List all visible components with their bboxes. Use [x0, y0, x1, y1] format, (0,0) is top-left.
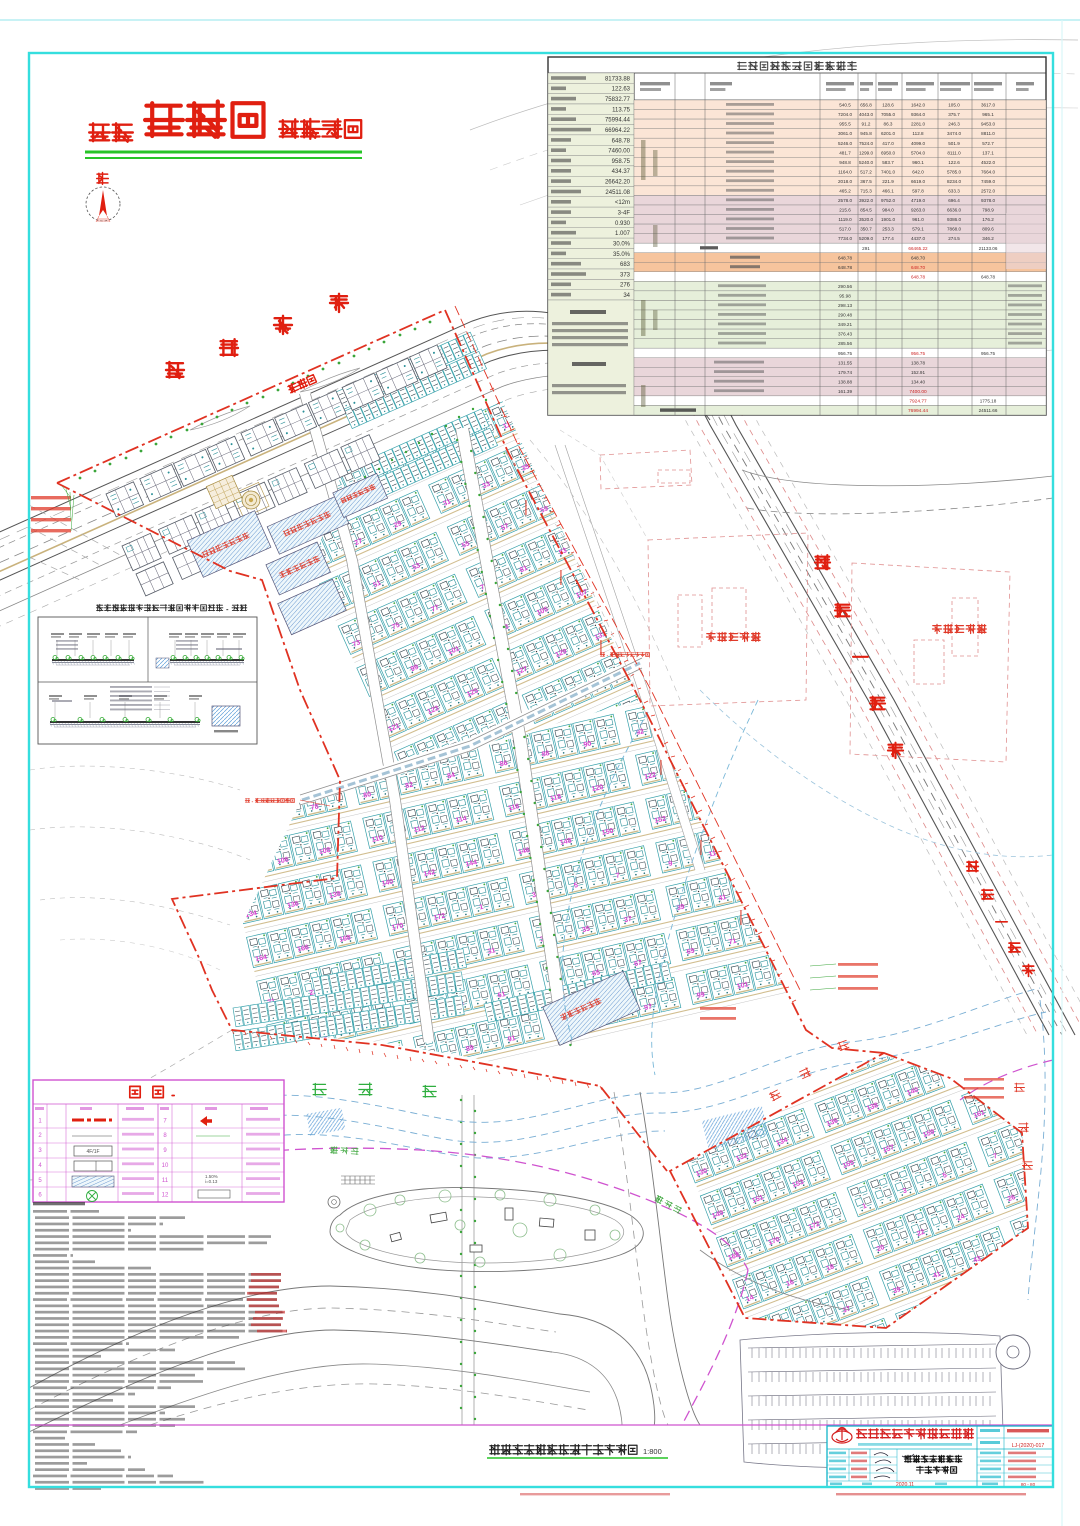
svg-text:648.78: 648.78 — [838, 265, 852, 270]
svg-text:7055.0: 7055.0 — [881, 112, 895, 117]
svg-text:965.1: 965.1 — [982, 112, 994, 117]
svg-text:9752.0: 9752.0 — [881, 198, 895, 203]
svg-text:24511.08: 24511.08 — [605, 190, 630, 196]
svg-text:i=0.13: i=0.13 — [205, 1179, 218, 1184]
svg-text:501.9: 501.9 — [948, 141, 960, 146]
svg-text:5209.0: 5209.0 — [859, 236, 873, 241]
svg-text:958.75: 958.75 — [612, 159, 631, 165]
svg-text:350.7: 350.7 — [860, 227, 872, 232]
svg-text:10: 10 — [162, 1163, 169, 1169]
svg-text:113.75: 113.75 — [612, 107, 631, 113]
svg-text:4522.0: 4522.0 — [981, 160, 995, 165]
svg-text:274.5: 274.5 — [948, 236, 960, 241]
svg-text:572.7: 572.7 — [982, 141, 994, 146]
svg-text:221.9: 221.9 — [882, 179, 894, 184]
svg-text:8234.0: 8234.0 — [947, 179, 961, 184]
svg-text:648.78: 648.78 — [612, 138, 631, 144]
svg-text:253.3: 253.3 — [882, 227, 894, 232]
svg-text:648.78: 648.78 — [981, 274, 995, 279]
svg-text:2018.0: 2018.0 — [838, 179, 852, 184]
svg-text:7734.0: 7734.0 — [838, 236, 852, 241]
svg-text:3-4F: 3-4F — [618, 211, 631, 217]
svg-text:81733.88: 81733.88 — [605, 76, 631, 82]
svg-text:7460.00: 7460.00 — [608, 149, 630, 155]
svg-text:95.98: 95.98 — [839, 294, 851, 299]
svg-text:517.2: 517.2 — [860, 169, 872, 174]
svg-text:176.2: 176.2 — [982, 217, 994, 222]
svg-text:696.4: 696.4 — [948, 198, 960, 203]
svg-text:7924.77: 7924.77 — [909, 399, 927, 405]
svg-text:3061.0: 3061.0 — [838, 131, 852, 136]
svg-text:9263.0: 9263.0 — [911, 208, 925, 213]
svg-text:583.7: 583.7 — [882, 160, 894, 165]
svg-text:138.78: 138.78 — [911, 360, 925, 365]
svg-text:648.78: 648.78 — [838, 255, 852, 260]
svg-text:12: 12 — [162, 1193, 169, 1199]
svg-text:809.6: 809.6 — [982, 227, 994, 232]
svg-text:956.75: 956.75 — [981, 351, 995, 356]
svg-text:854.5: 854.5 — [860, 208, 872, 213]
svg-text:956.75: 956.75 — [838, 351, 852, 356]
svg-text:8111.0: 8111.0 — [947, 150, 961, 155]
svg-text:11: 11 — [162, 1178, 169, 1184]
svg-text:66465.22: 66465.22 — [908, 246, 928, 251]
svg-text:6201.0: 6201.0 — [881, 131, 895, 136]
svg-text:4719.0: 4719.0 — [911, 198, 925, 203]
svg-text:715.3: 715.3 — [860, 189, 872, 194]
svg-text:137.1: 137.1 — [982, 150, 994, 155]
svg-text:4437.0: 4437.0 — [911, 236, 925, 241]
svg-text:122.63: 122.63 — [612, 87, 631, 93]
svg-text:7868.0: 7868.0 — [947, 227, 961, 232]
svg-text:5704.0: 5704.0 — [911, 150, 925, 155]
svg-text:34: 34 — [623, 293, 630, 299]
svg-text:375.7: 375.7 — [948, 112, 960, 117]
svg-text:376.43: 376.43 — [838, 332, 852, 337]
svg-text:517.0: 517.0 — [839, 227, 851, 232]
svg-text:21133.06: 21133.06 — [979, 246, 998, 251]
svg-text:6619.0: 6619.0 — [911, 179, 925, 184]
svg-text:1901.0: 1901.0 — [881, 217, 895, 222]
svg-text:0.930: 0.930 — [615, 221, 631, 227]
svg-text:656.8: 656.8 — [860, 103, 872, 108]
svg-text:648.70: 648.70 — [911, 265, 925, 270]
svg-text:7459.0: 7459.0 — [981, 179, 995, 184]
svg-text:956.75: 956.75 — [911, 351, 925, 356]
svg-text:465.2: 465.2 — [839, 189, 851, 194]
svg-text:290.48: 290.48 — [838, 313, 852, 318]
svg-text:112.8: 112.8 — [912, 131, 924, 136]
svg-text:75832.77: 75832.77 — [605, 97, 631, 103]
svg-text:597.8: 597.8 — [912, 189, 924, 194]
svg-text:35.0%: 35.0% — [613, 252, 631, 258]
svg-text:76994.44: 76994.44 — [908, 408, 928, 414]
svg-text:9378.0: 9378.0 — [981, 198, 995, 203]
svg-text:1299.0: 1299.0 — [859, 150, 873, 155]
svg-text:648.78: 648.78 — [911, 274, 925, 279]
svg-text:1164.0: 1164.0 — [838, 169, 852, 174]
svg-text:960.1: 960.1 — [912, 160, 924, 165]
svg-text:66964.22: 66964.22 — [605, 128, 631, 134]
svg-text:86.3: 86.3 — [884, 122, 893, 127]
svg-text:346.2: 346.2 — [982, 236, 994, 241]
svg-text:138.88: 138.88 — [838, 379, 852, 384]
svg-text:648.70: 648.70 — [911, 255, 925, 260]
svg-text:91.2: 91.2 — [862, 122, 871, 127]
svg-text:1775.18: 1775.18 — [980, 399, 997, 404]
svg-text:122.6: 122.6 — [948, 160, 960, 165]
svg-text:349.21: 349.21 — [838, 322, 852, 327]
svg-text:LJ-(2020)-017: LJ-(2020)-017 — [1012, 1443, 1045, 1449]
svg-text:540.5: 540.5 — [839, 103, 851, 108]
svg-text:798.9: 798.9 — [982, 208, 994, 213]
svg-text:179.74: 179.74 — [838, 370, 852, 375]
svg-text:5240.0: 5240.0 — [859, 160, 873, 165]
svg-text:9364.0: 9364.0 — [911, 112, 925, 117]
svg-text:276: 276 — [620, 283, 631, 289]
svg-text:75994.44: 75994.44 — [605, 118, 631, 124]
svg-text:955.5: 955.5 — [839, 122, 851, 127]
svg-text:298.13: 298.13 — [838, 303, 852, 308]
svg-text:1119.0: 1119.0 — [838, 217, 852, 222]
svg-text:177.4: 177.4 — [882, 236, 894, 241]
svg-text:3520.0: 3520.0 — [859, 217, 873, 222]
svg-text:945.8: 945.8 — [860, 131, 872, 136]
svg-text:373: 373 — [620, 272, 631, 278]
svg-text:984.0: 984.0 — [882, 208, 894, 213]
svg-text:633.3: 633.3 — [948, 189, 960, 194]
svg-text:2578.0: 2578.0 — [838, 198, 852, 203]
svg-text:642.0: 642.0 — [912, 169, 924, 174]
svg-text:948.8: 948.8 — [839, 160, 851, 165]
svg-text:161.39: 161.39 — [838, 389, 852, 394]
svg-text:6636.0: 6636.0 — [947, 208, 961, 213]
svg-text:128.6: 128.6 — [882, 103, 894, 108]
svg-text:<12m: <12m — [615, 200, 630, 206]
svg-text:3922.0: 3922.0 — [859, 198, 873, 203]
svg-text:5785.0: 5785.0 — [947, 169, 961, 174]
svg-text:290.56: 290.56 — [838, 284, 852, 289]
svg-text:30.0%: 30.0% — [613, 241, 631, 247]
svg-text:1642.0: 1642.0 — [911, 103, 925, 108]
svg-text:417.0: 417.0 — [882, 141, 894, 146]
svg-text:2572.0: 2572.0 — [981, 189, 995, 194]
svg-text:152.91: 152.91 — [911, 370, 925, 375]
svg-text:215.6: 215.6 — [839, 208, 851, 213]
svg-text:7204.0: 7204.0 — [838, 112, 852, 117]
svg-text:1:800: 1:800 — [643, 1447, 662, 1456]
svg-text:434.37: 434.37 — [612, 169, 631, 175]
svg-text:8811.0: 8811.0 — [981, 131, 995, 136]
svg-text:105.0: 105.0 — [948, 103, 960, 108]
svg-text:4043.0: 4043.0 — [859, 112, 873, 117]
svg-text:4099.0: 4099.0 — [911, 141, 925, 146]
svg-text:7401.0: 7401.0 — [881, 169, 895, 174]
svg-text:3617.0: 3617.0 — [981, 103, 995, 108]
svg-text:26642.20: 26642.20 — [605, 180, 631, 186]
svg-text:291: 291 — [862, 246, 870, 251]
svg-text:367.5: 367.5 — [860, 179, 872, 184]
svg-text:1.007: 1.007 — [615, 231, 631, 237]
svg-text:466.1: 466.1 — [882, 189, 894, 194]
svg-text:5246.0: 5246.0 — [838, 141, 852, 146]
svg-text:7524.0: 7524.0 — [859, 141, 873, 146]
svg-text:481.7: 481.7 — [839, 150, 851, 155]
svg-text:285.56: 285.56 — [838, 341, 852, 346]
svg-text:4F/1F: 4F/1F — [86, 1149, 99, 1155]
svg-text:24511.66: 24511.66 — [979, 408, 998, 413]
svg-text:579.1: 579.1 — [912, 227, 924, 232]
svg-text:7664.0: 7664.0 — [981, 169, 995, 174]
svg-text:961.0: 961.0 — [912, 217, 924, 222]
svg-text:131.55: 131.55 — [838, 360, 852, 365]
svg-text:9386.0: 9386.0 — [947, 217, 961, 222]
svg-text:9453.0: 9453.0 — [981, 122, 995, 127]
svg-text:683: 683 — [620, 262, 631, 268]
svg-text:2281.0: 2281.0 — [911, 122, 925, 127]
svg-text:6950.0: 6950.0 — [881, 150, 895, 155]
svg-text:3474.0: 3474.0 — [947, 131, 961, 136]
svg-text:7400.00: 7400.00 — [909, 389, 927, 395]
svg-text:134.40: 134.40 — [911, 379, 925, 384]
svg-text:246.3: 246.3 — [948, 122, 960, 127]
